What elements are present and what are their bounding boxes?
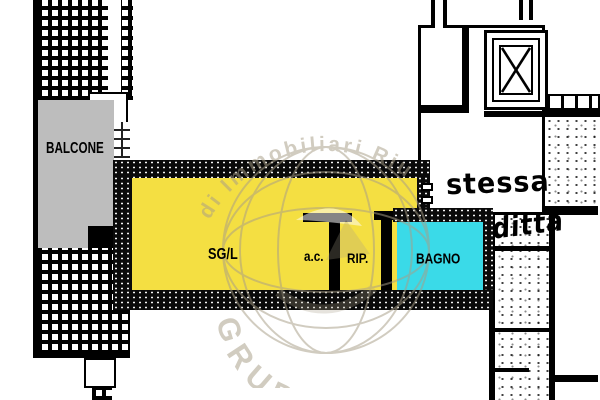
floorplan-canvas: BALCONE SG/L a.c. RIP. BAGNO — [0, 0, 600, 400]
watermark-globe: di Immobiliari Riu GRUPPO — [178, 92, 482, 388]
neighbor-left-gap — [108, 0, 121, 95]
chimney-right — [519, 0, 533, 20]
neighbor-left-strip — [112, 122, 130, 158]
pillar-lower — [92, 388, 112, 400]
elevator-base-wall — [484, 111, 548, 117]
room-bagno-label: BAGNO — [416, 250, 460, 267]
room-sgl-label: SG/L — [208, 246, 238, 264]
elevator-shaft-inner — [499, 45, 533, 95]
right-wall-upper — [545, 108, 600, 117]
elevator-x-icon — [501, 47, 531, 93]
corridor-right-wall — [549, 215, 555, 400]
corridor-tick-2 — [489, 328, 555, 332]
corridor-stub-wall — [549, 375, 598, 382]
right-hatch-upper — [545, 117, 600, 208]
chimney-left — [431, 0, 447, 28]
room-rip-label: RIP. — [347, 251, 368, 267]
balcony-label: BALCONE — [46, 140, 104, 158]
corridor-tick-3 — [489, 368, 529, 372]
room-ac-label: a.c. — [304, 249, 324, 265]
pillar-upper — [84, 358, 116, 388]
annotation-stessa: stessa — [445, 165, 550, 201]
corridor-tick-1 — [489, 246, 555, 251]
